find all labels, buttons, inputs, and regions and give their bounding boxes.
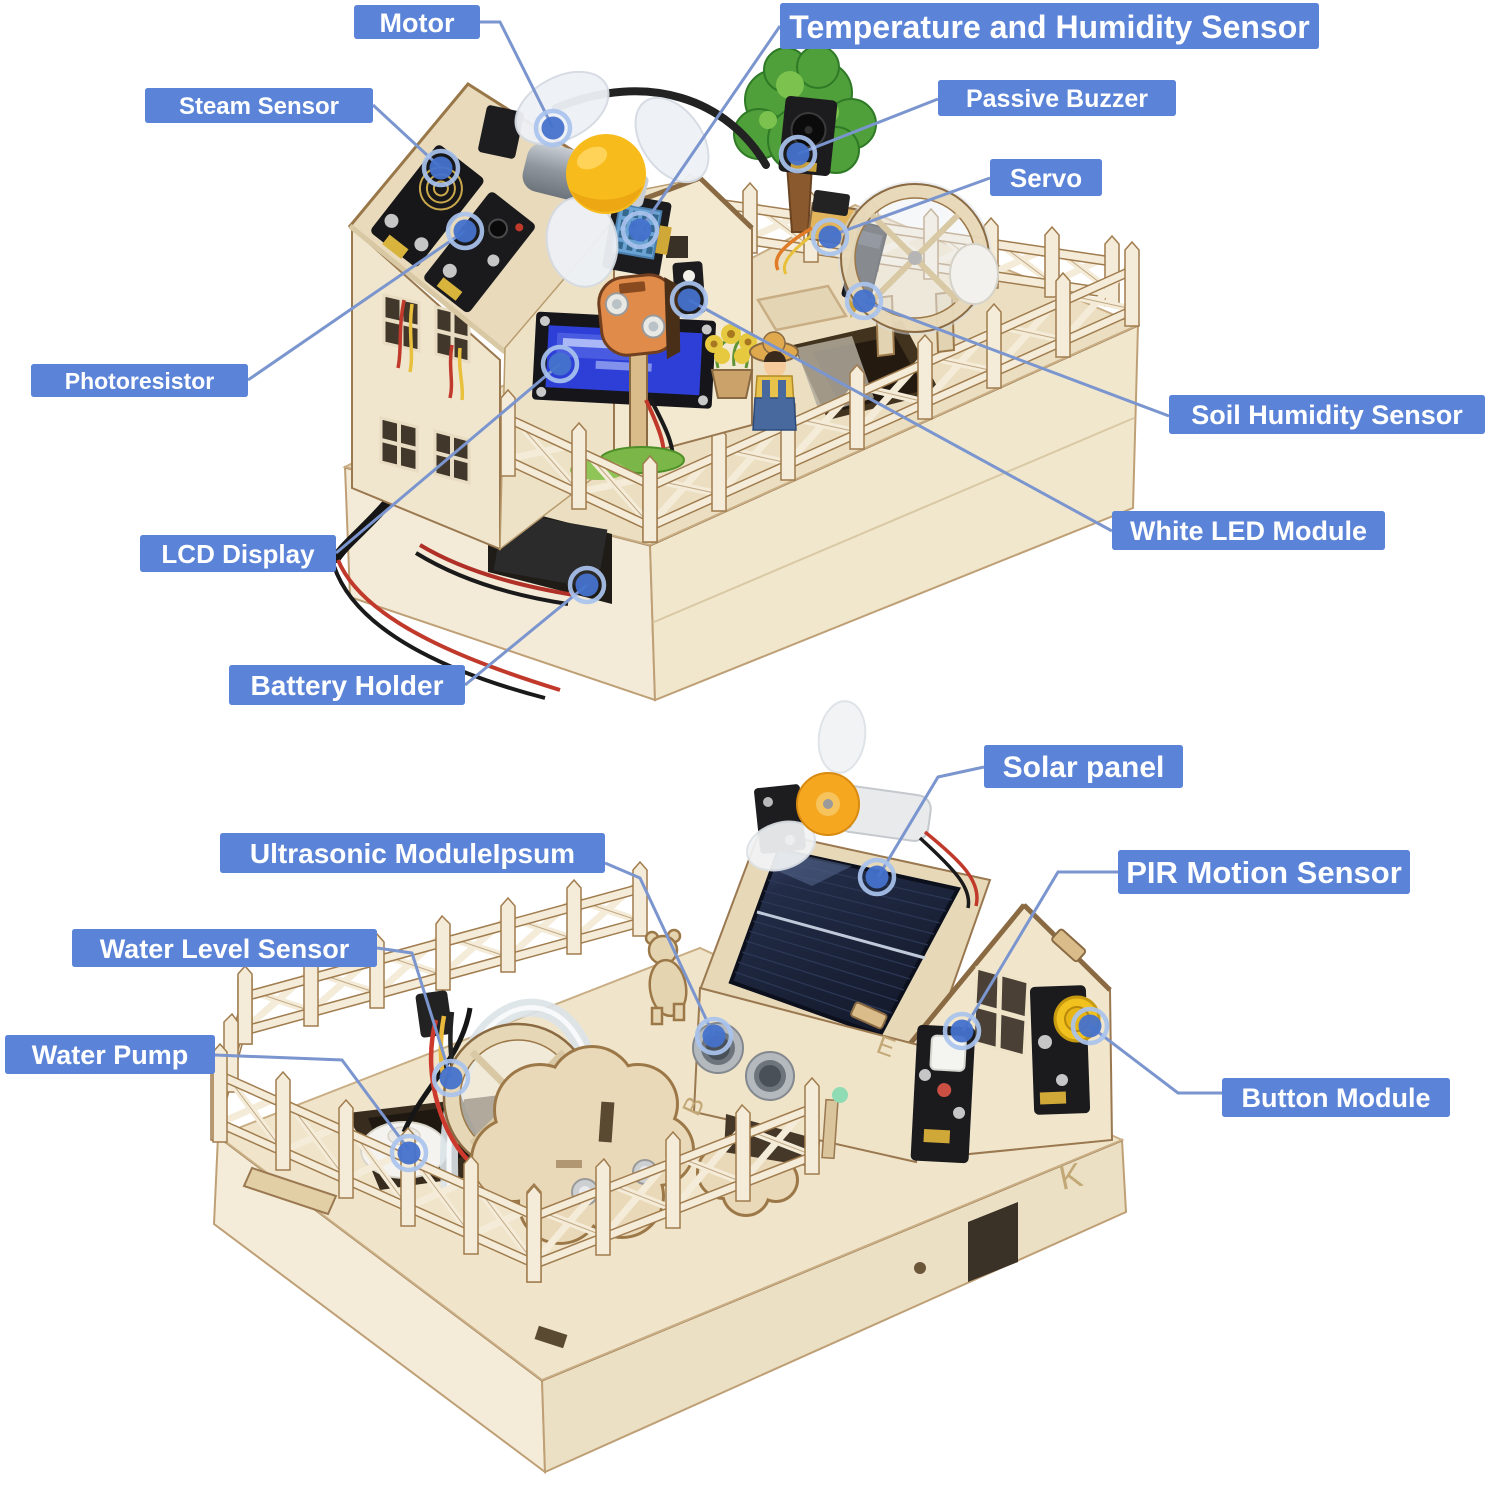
- svg-text:Ultrasonic ModuleIpsum: Ultrasonic ModuleIpsum: [250, 838, 575, 869]
- svg-text:Water Level Sensor: Water Level Sensor: [100, 934, 350, 964]
- svg-text:Passive Buzzer: Passive Buzzer: [966, 85, 1148, 113]
- svg-text:PIR Motion Sensor: PIR Motion Sensor: [1126, 855, 1402, 890]
- svg-text:Temperature and Humidity Senso: Temperature and Humidity Sensor: [789, 9, 1309, 45]
- svg-text:Photoresistor: Photoresistor: [65, 368, 215, 394]
- svg-text:Motor: Motor: [380, 8, 455, 38]
- svg-text:LCD Display: LCD Display: [161, 539, 315, 569]
- svg-text:Button Module: Button Module: [1242, 1083, 1431, 1113]
- svg-text:Water Pump: Water Pump: [32, 1040, 189, 1070]
- svg-text:Steam Sensor: Steam Sensor: [179, 93, 339, 120]
- svg-text:Soil Humidity Sensor: Soil Humidity Sensor: [1191, 400, 1463, 430]
- svg-text:White LED Module: White LED Module: [1130, 516, 1367, 546]
- svg-text:Battery Holder: Battery Holder: [251, 670, 444, 701]
- svg-text:Solar panel: Solar panel: [1003, 751, 1165, 784]
- svg-text:Servo: Servo: [1010, 163, 1082, 193]
